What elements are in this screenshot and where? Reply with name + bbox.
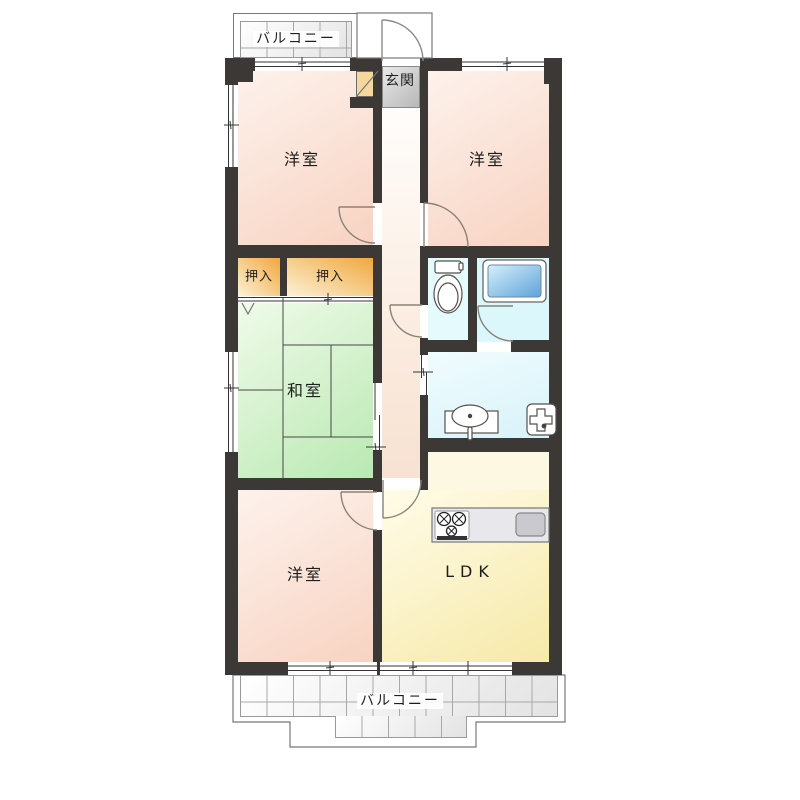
label-bedroom-top-left: 洋室 <box>284 152 320 168</box>
door-bath-icon <box>478 306 513 341</box>
washroom-sliding-door-icon <box>413 355 433 395</box>
floor-plan: バルコニー 玄関 洋室 洋室 押入 押入 和室 洋室 LDK バルコニー <box>0 0 800 800</box>
closet-sliding-door-icon <box>238 293 373 305</box>
window-ldk-bottom <box>380 661 512 675</box>
stove-icon <box>435 511 469 540</box>
label-closet-left: 押入 <box>245 271 273 284</box>
door-bedroomTR-icon <box>424 203 468 247</box>
window-bedroomTL-left <box>224 85 239 167</box>
label-bedroom-top-right: 洋室 <box>469 152 505 168</box>
door-bedroomBL-icon <box>341 492 377 530</box>
label-entrance: 玄関 <box>385 74 415 88</box>
window-bedroomBL-bottom <box>288 661 377 675</box>
shoe-cabinet-diagonal <box>356 71 378 97</box>
label-closet-right: 押入 <box>316 271 344 284</box>
label-japanese-room: 和室 <box>287 383 323 399</box>
label-balcony-top: バルコニー <box>253 31 339 47</box>
washbasin-icon <box>445 405 498 440</box>
label-bedroom-bottom-left: 洋室 <box>287 567 323 583</box>
window-balcony-top <box>255 57 350 71</box>
kitchen-counter <box>432 508 549 542</box>
door-toilet-icon <box>390 305 422 337</box>
label-balcony-bottom: バルコニー <box>357 693 443 709</box>
window-washitsu-left <box>224 352 239 452</box>
label-ldk: LDK <box>445 564 495 580</box>
kitchen-sink-icon <box>516 513 545 536</box>
plan-graphics <box>0 0 800 800</box>
door-bedroomTL-icon <box>339 207 375 243</box>
washing-machine-pan-icon <box>527 404 556 435</box>
toilet-icon <box>434 261 463 313</box>
bathtub-icon <box>483 260 546 302</box>
door-ldk-icon <box>383 480 421 518</box>
window-bedroomTR-top <box>462 57 544 71</box>
vent-marker <box>242 303 254 314</box>
washitsu-sliding-door-icon <box>366 383 386 451</box>
